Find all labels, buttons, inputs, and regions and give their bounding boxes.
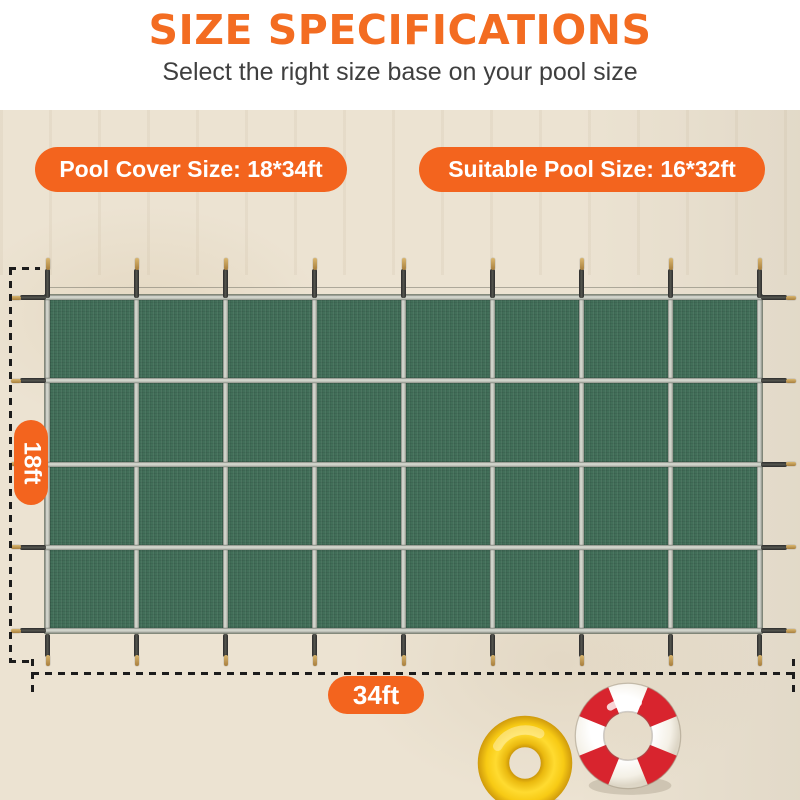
anchor-pin-left (11, 545, 21, 549)
anchor-strap-top (579, 269, 584, 298)
anchor-pin-right (786, 545, 796, 549)
anchor-pin-top (491, 258, 495, 270)
width-dimension-cap-right (792, 659, 795, 694)
anchor-strap-top (45, 269, 50, 298)
anchor-pin-top (313, 258, 317, 270)
anchor-strap-right (761, 628, 787, 633)
anchor-strap-bottom (223, 634, 228, 657)
anchor-strap-bottom (134, 634, 139, 657)
page-title: SIZE SPECIFICATIONS (0, 6, 800, 54)
anchor-strap-right (761, 462, 787, 467)
anchor-strap-bottom (312, 634, 317, 657)
anchor-pin-bottom (669, 655, 673, 666)
cover-strap-horizontal (45, 462, 762, 467)
anchor-strap-right (761, 545, 787, 550)
anchor-pin-right (786, 379, 796, 383)
anchor-strap-top (312, 269, 317, 298)
width-dimension-line (32, 672, 794, 675)
anchor-pin-left (11, 296, 21, 300)
anchor-pin-top (135, 258, 139, 270)
anchor-pin-left (11, 629, 21, 633)
red-white-lifebuoy (566, 676, 690, 800)
anchor-pin-bottom (224, 655, 228, 666)
anchor-pin-right (786, 462, 796, 466)
anchor-strap-left (20, 628, 46, 633)
anchor-strap-top (757, 269, 762, 298)
anchor-strap-top (134, 269, 139, 298)
height-badge-label: 18ft (17, 441, 45, 484)
width-badge: 34ft (328, 676, 424, 714)
anchor-pin-bottom (580, 655, 584, 666)
pool-size-badge: Suitable Pool Size: 16*32ft (419, 147, 765, 192)
anchor-pin-top (669, 258, 673, 270)
anchor-strap-left (20, 378, 46, 383)
anchor-pin-bottom (491, 655, 495, 666)
anchor-pin-top (758, 258, 762, 270)
height-dimension-line (9, 268, 12, 662)
anchor-strap-top (668, 269, 673, 298)
anchor-pin-bottom (135, 655, 139, 666)
cover-size-badge: Pool Cover Size: 18*34ft (35, 147, 347, 192)
anchor-pin-bottom (758, 655, 762, 666)
anchor-strap-right (761, 295, 787, 300)
anchor-strap-left (20, 545, 46, 550)
cover-strap-horizontal (45, 545, 762, 550)
width-dimension-cap-left (31, 659, 34, 693)
cover-strap-horizontal (45, 378, 762, 383)
anchor-strap-bottom (668, 634, 673, 657)
header-band: SIZE SPECIFICATIONS Select the right siz… (0, 0, 800, 110)
anchor-pin-top (46, 258, 50, 270)
product-infographic: SIZE SPECIFICATIONS Select the right siz… (0, 0, 800, 800)
cover-strap-horizontal (45, 628, 762, 633)
anchor-strap-left (20, 295, 46, 300)
height-dimension-cap-top (9, 267, 40, 270)
anchor-strap-bottom (757, 634, 762, 657)
height-badge: 18ft (14, 420, 48, 505)
lifebuoy-inner-edge (604, 712, 653, 761)
anchor-pin-bottom (402, 655, 406, 666)
anchor-pin-bottom (313, 655, 317, 666)
page-subtitle: Select the right size base on your pool … (0, 58, 800, 87)
pool-cover (45, 295, 762, 633)
anchor-pin-right (786, 296, 796, 300)
anchor-strap-top (490, 269, 495, 298)
anchor-strap-bottom (401, 634, 406, 657)
anchor-strap-bottom (579, 634, 584, 657)
tile-texture (0, 110, 800, 275)
anchor-strap-top (401, 269, 406, 298)
anchor-pin-left (11, 379, 21, 383)
anchor-pin-right (786, 629, 796, 633)
anchor-pin-top (580, 258, 584, 270)
anchor-pin-top (402, 258, 406, 270)
anchor-strap-bottom (490, 634, 495, 657)
anchor-strap-bottom (45, 634, 50, 657)
anchor-strap-top (223, 269, 228, 298)
anchor-pin-top (224, 258, 228, 270)
anchor-strap-right (761, 378, 787, 383)
anchor-pin-bottom (46, 655, 50, 666)
